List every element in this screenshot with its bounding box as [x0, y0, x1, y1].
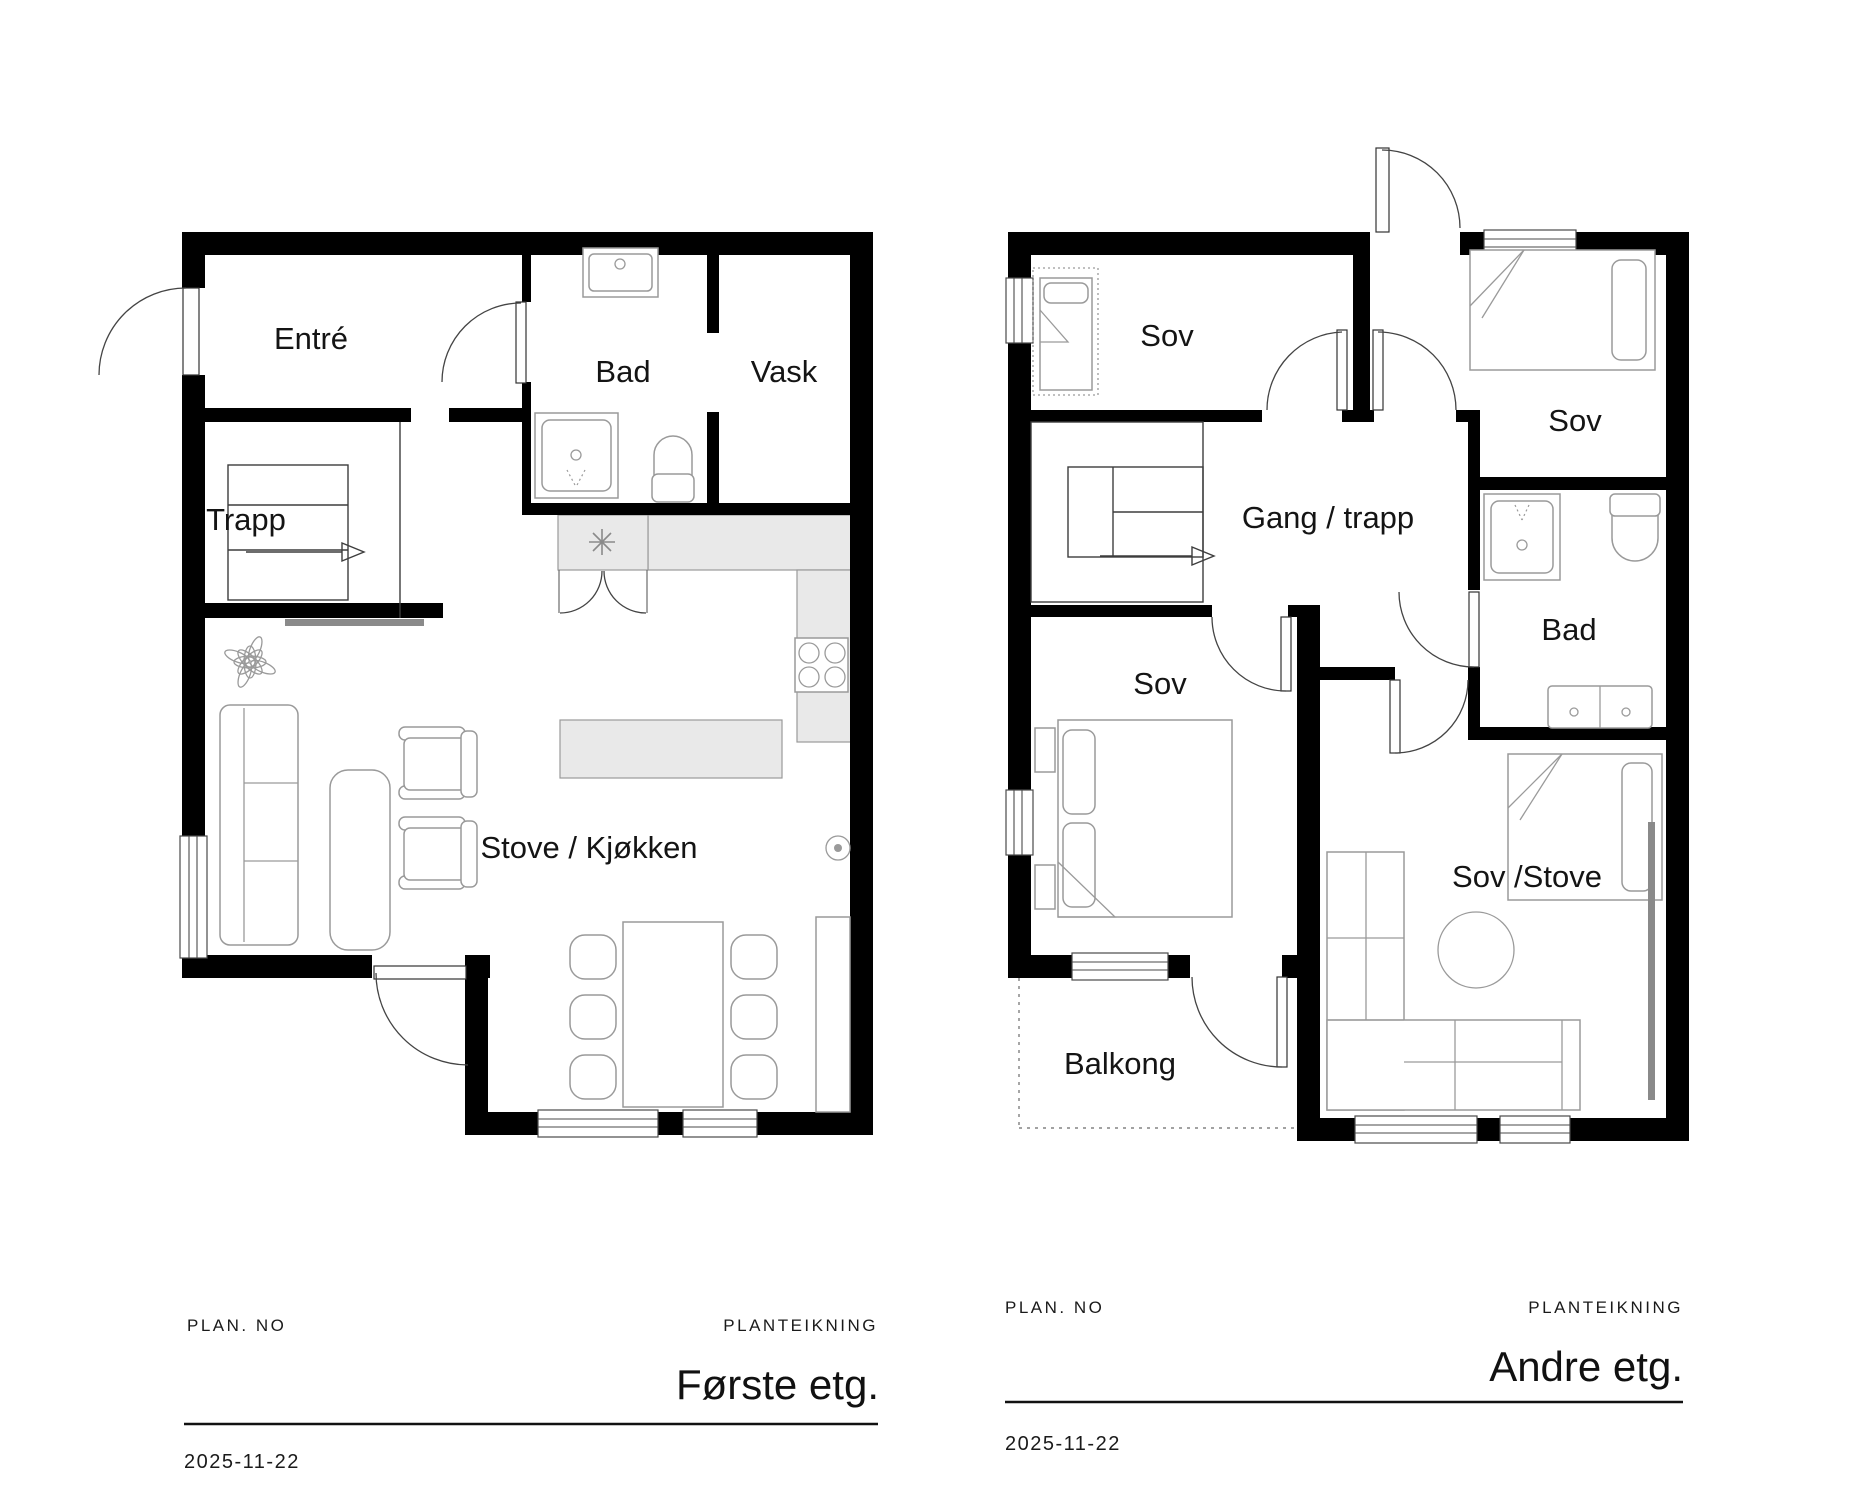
shelf	[816, 917, 850, 1112]
bathroom-door	[442, 302, 526, 383]
plan-no-label: PLAN. NO	[187, 1316, 286, 1335]
date: 2025-11-22	[184, 1451, 300, 1473]
date: 2025-11-22	[1005, 1433, 1121, 1455]
room-label-balkong: Balkong	[1064, 1046, 1176, 1081]
entry-door	[99, 288, 199, 375]
room-label-sov-2: Sov	[1548, 403, 1602, 438]
dining-chair	[731, 995, 777, 1039]
second-floor-plan: Sov Sov Gang / trapp Bad Sov Sov /Stove …	[1006, 148, 1689, 1143]
dining-chair	[731, 935, 777, 979]
cooktop	[795, 638, 848, 692]
room-label-sov-stove: Sov /Stove	[1452, 859, 1602, 894]
dining-chair	[570, 995, 616, 1039]
coffee-table	[330, 770, 390, 950]
balcony-door	[1192, 977, 1287, 1067]
title-block-first-floor: PLAN. NO PLANTEIKNING Første etg. 2025-1…	[184, 1316, 879, 1473]
bathroom-door	[1399, 592, 1479, 667]
room-label-bad-2: Bad	[1541, 612, 1596, 647]
first-floor-plan: Entré Trapp Bad Vask Stove / Kjøkken	[99, 232, 873, 1137]
entry-door	[1376, 148, 1460, 232]
toilet	[1610, 494, 1660, 561]
plan-no-label: PLAN. NO	[1005, 1298, 1104, 1317]
double-sink	[1548, 686, 1652, 728]
living-room-door	[1390, 680, 1468, 753]
bedroom-door	[1373, 330, 1456, 410]
floor-plan-sheet: Entré Trapp Bad Vask Stove / Kjøkken	[0, 0, 1875, 1510]
shower	[1484, 494, 1560, 580]
room-label-entre: Entré	[274, 321, 348, 356]
nightstand	[1035, 728, 1055, 772]
double-bed	[1035, 720, 1232, 917]
dining-chair	[570, 1055, 616, 1099]
sofa	[220, 705, 298, 945]
armchair	[399, 727, 477, 799]
room-label-vask: Vask	[751, 354, 818, 389]
kitchen-island	[560, 720, 782, 778]
dining-table-set	[570, 922, 777, 1107]
title-block-second-floor: PLAN. NO PLANTEIKNING Andre etg. 2025-11…	[1005, 1298, 1683, 1455]
bedroom-door	[1267, 330, 1347, 410]
wardrobe-accent	[1648, 822, 1655, 1100]
bathroom-sink	[583, 248, 658, 297]
single-bed	[1033, 268, 1098, 395]
dining-chair	[731, 1055, 777, 1099]
room-label-sov-1: Sov	[1140, 318, 1194, 353]
fridge-doors	[559, 570, 647, 613]
floor-title: Første etg.	[676, 1361, 879, 1408]
bedroom-door	[1212, 617, 1291, 691]
single-bed	[1470, 250, 1655, 370]
floor-title: Andre etg.	[1489, 1343, 1683, 1390]
plant	[223, 635, 277, 689]
nightstand	[1035, 865, 1055, 909]
room-label-sov-3: Sov	[1133, 666, 1187, 701]
round-table	[1438, 912, 1514, 988]
drawing-type-label: PLANTEIKNING	[1528, 1298, 1683, 1317]
stairs	[1031, 422, 1214, 602]
drawing-type-label: PLANTEIKNING	[723, 1316, 878, 1335]
armchair	[399, 817, 477, 889]
shower	[535, 413, 618, 498]
dining-chair	[570, 935, 616, 979]
room-label-stove-kjokken: Stove / Kjøkken	[480, 830, 697, 865]
room-label-bad-1: Bad	[595, 354, 650, 389]
toilet	[652, 436, 694, 502]
sideboard-accent	[285, 619, 424, 626]
room-label-gang-trapp: Gang / trapp	[1242, 500, 1414, 535]
room-label-trapp: Trapp	[206, 502, 286, 537]
terrace-door	[374, 966, 468, 1065]
floor-lamp	[826, 836, 850, 860]
